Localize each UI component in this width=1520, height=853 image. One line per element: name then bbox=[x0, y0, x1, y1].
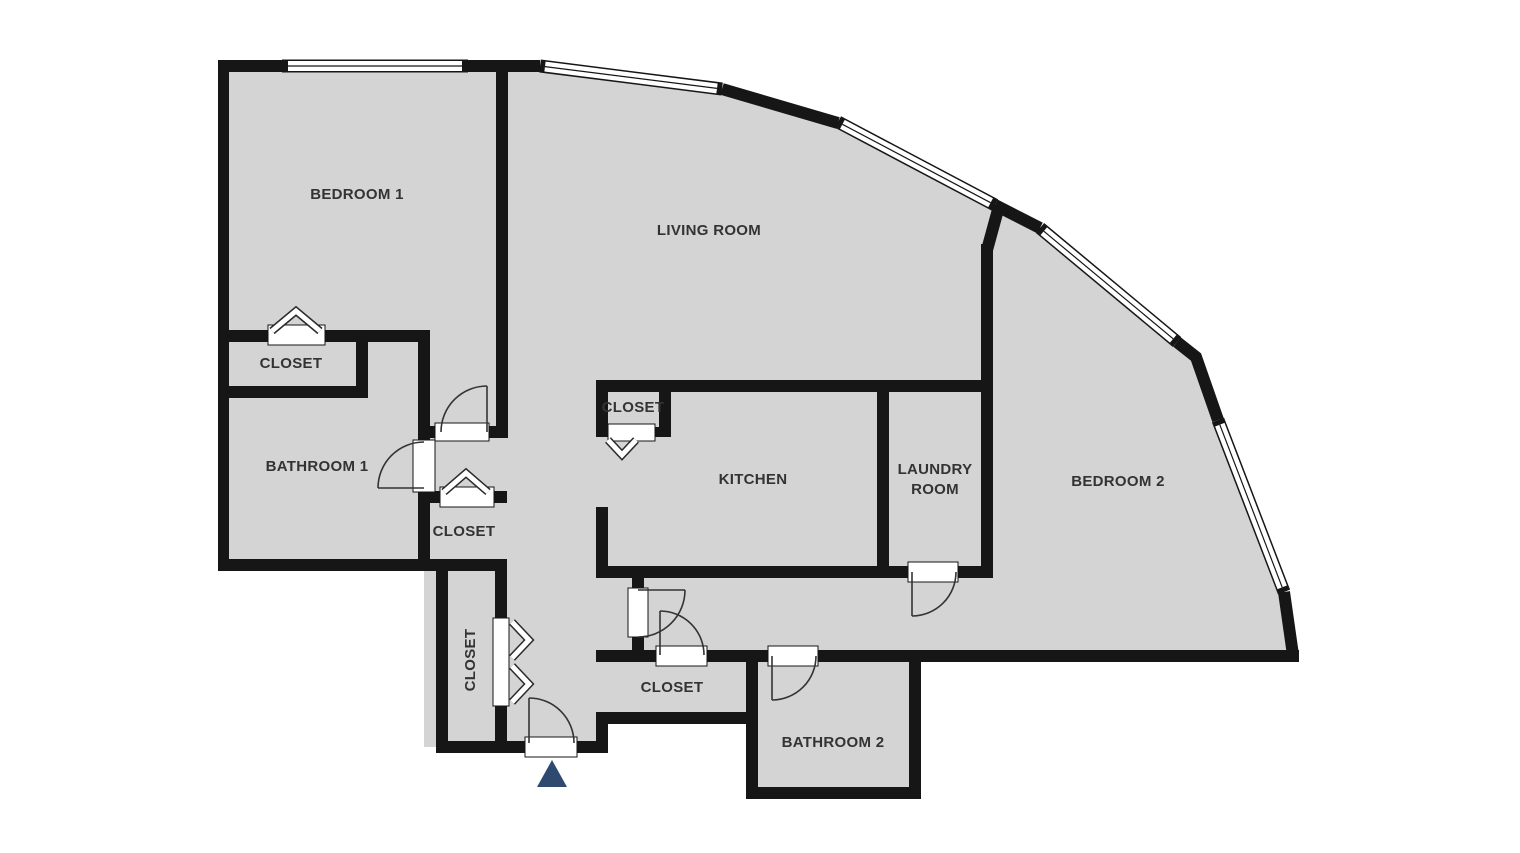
opening-laundry bbox=[908, 562, 958, 582]
room-label-closet2: CLOSET bbox=[433, 523, 496, 540]
room-label-bedroom1: BEDROOM 1 bbox=[310, 186, 404, 203]
opening-hallcloset bbox=[493, 618, 509, 706]
opening-entry bbox=[525, 737, 577, 757]
wall-kitchen-left-lower bbox=[596, 507, 608, 578]
wall-hallcloset-left bbox=[436, 571, 448, 753]
wall-closet3-bottom bbox=[655, 427, 671, 437]
wall-living-bedroom2-divider bbox=[981, 244, 993, 578]
room-label-living: LIVING ROOM bbox=[657, 222, 761, 239]
wall-bathroom1-right-upper bbox=[418, 330, 430, 442]
wall-bedroom1-right bbox=[496, 60, 508, 438]
entrance-arrow-icon bbox=[537, 760, 567, 787]
wall-south-c bbox=[818, 650, 1299, 662]
room-label-kitchen: KITCHEN bbox=[719, 471, 788, 488]
wall-bathroom2-left bbox=[746, 662, 758, 799]
room-label-closet4: CLOSET bbox=[641, 679, 704, 696]
wall-vestibule-east bbox=[596, 712, 608, 753]
room-label-laundry-line1: LAUNDRY bbox=[898, 461, 973, 478]
wall-kitchen-bottom bbox=[596, 566, 910, 578]
opening-bathroom2 bbox=[768, 646, 818, 666]
wall-bathroom1-bottom bbox=[218, 559, 507, 571]
wall-south-b bbox=[707, 650, 770, 662]
wall-hall-door-top bbox=[632, 578, 644, 588]
room-label-hallcloset: CLOSET bbox=[462, 629, 479, 692]
wall-bedroom1-bottom-right bbox=[322, 330, 424, 342]
opening-bathroom1 bbox=[413, 440, 435, 492]
wall-hallcloset-right-upper bbox=[495, 571, 507, 620]
wall-hallcloset-right-lower bbox=[495, 705, 507, 753]
wall-entry-bottom-left bbox=[436, 741, 527, 753]
wall-bedroom1-door-right bbox=[487, 426, 508, 438]
room-label-bedroom2: BEDROOM 2 bbox=[1071, 473, 1165, 490]
room-label-laundry-line2: ROOM bbox=[911, 481, 959, 498]
opening-hall-door bbox=[628, 588, 648, 637]
floor-bathroom2 bbox=[752, 656, 916, 794]
room-label-bathroom2: BATHROOM 2 bbox=[782, 734, 885, 751]
room-label-bathroom1: BATHROOM 1 bbox=[266, 458, 369, 475]
wall-closet1-bottom bbox=[218, 386, 368, 398]
floorplan-page: BEDROOM 1 LIVING ROOM CLOSET BATHROOM 1 … bbox=[0, 0, 1520, 853]
room-label-closet3: CLOSET bbox=[602, 399, 665, 416]
wall-kitchen-laundry-divider bbox=[877, 392, 889, 578]
wall-bedroom1-bottom-left bbox=[218, 330, 270, 342]
wall-south-a bbox=[596, 650, 658, 662]
floorplan-drawing: BEDROOM 1 LIVING ROOM CLOSET BATHROOM 1 … bbox=[0, 0, 1520, 853]
wall-bathroom2-bottom bbox=[746, 787, 921, 799]
wall-bedroom1-door-left bbox=[418, 426, 437, 438]
wall-bathroom2-right bbox=[909, 662, 921, 799]
wall-left-exterior bbox=[218, 60, 229, 571]
wall-hall-door-bottom bbox=[632, 637, 644, 662]
wall-closet2-top-left bbox=[418, 491, 442, 503]
opening-closet3 bbox=[608, 424, 655, 441]
wall-kitchen-top bbox=[596, 380, 990, 392]
room-label-closet1: CLOSET bbox=[260, 355, 323, 372]
opening-bedroom1 bbox=[435, 423, 489, 441]
opening-closet4 bbox=[656, 646, 707, 666]
wall-closet4-bottom bbox=[596, 712, 758, 724]
